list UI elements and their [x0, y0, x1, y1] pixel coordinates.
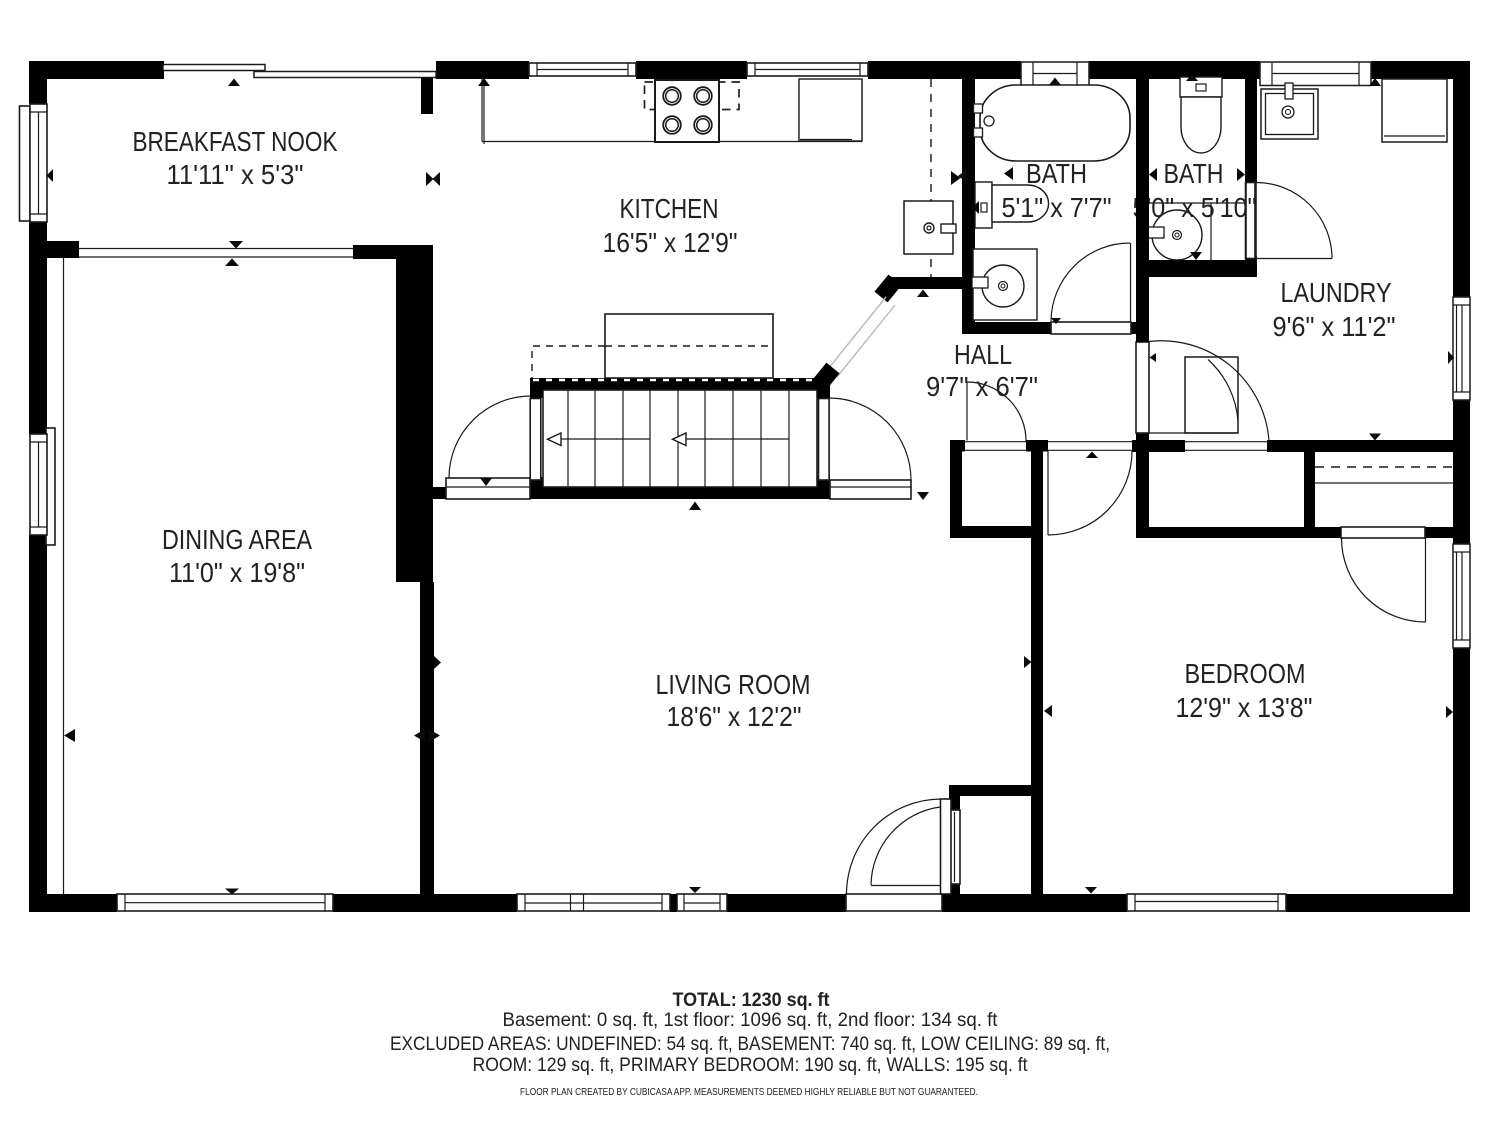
svg-text:ROOM: 129 sq. ft, PRIMARY BEDR: ROOM: 129 sq. ft, PRIMARY BEDROOM: 190 s…: [473, 1055, 1029, 1076]
svg-text:11'0" x 19'8": 11'0" x 19'8": [169, 557, 305, 588]
svg-text:5'1" x 7'7": 5'1" x 7'7": [1002, 192, 1112, 223]
svg-text:TOTAL: 1230 sq. ft: TOTAL: 1230 sq. ft: [673, 990, 831, 1011]
svg-text:LIVING ROOM: LIVING ROOM: [656, 669, 811, 700]
svg-text:Basement: 0 sq. ft, 1st floor:: Basement: 0 sq. ft, 1st floor: 1096 sq. …: [503, 1010, 999, 1031]
svg-text:11'11" x 5'3": 11'11" x 5'3": [167, 159, 304, 190]
svg-text:5'0" x 5'10": 5'0" x 5'10": [1133, 192, 1257, 223]
svg-text:9'7" x 6'7": 9'7" x 6'7": [926, 371, 1038, 402]
svg-text:BATH: BATH: [1164, 158, 1224, 189]
svg-text:EXCLUDED AREAS: UNDEFINED: 54: EXCLUDED AREAS: UNDEFINED: 54 sq. ft, BA…: [390, 1034, 1110, 1055]
svg-text:KITCHEN: KITCHEN: [620, 193, 719, 224]
svg-text:DINING AREA: DINING AREA: [162, 524, 312, 555]
svg-text:BATH: BATH: [1026, 158, 1087, 189]
svg-text:HALL: HALL: [954, 339, 1012, 370]
svg-text:LAUNDRY: LAUNDRY: [1281, 277, 1392, 308]
svg-text:18'6" x 12'2": 18'6" x 12'2": [667, 701, 802, 732]
svg-text:16'5" x 12'9": 16'5" x 12'9": [603, 227, 738, 258]
svg-text:BEDROOM: BEDROOM: [1185, 658, 1306, 689]
svg-text:FLOOR PLAN CREATED BY CUBICASA: FLOOR PLAN CREATED BY CUBICASA APP. MEAS…: [520, 1087, 978, 1098]
svg-text:12'9" x 13'8": 12'9" x 13'8": [1176, 692, 1313, 723]
svg-text:BREAKFAST NOOK: BREAKFAST NOOK: [133, 126, 338, 157]
svg-text:9'6" x 11'2": 9'6" x 11'2": [1273, 311, 1396, 342]
